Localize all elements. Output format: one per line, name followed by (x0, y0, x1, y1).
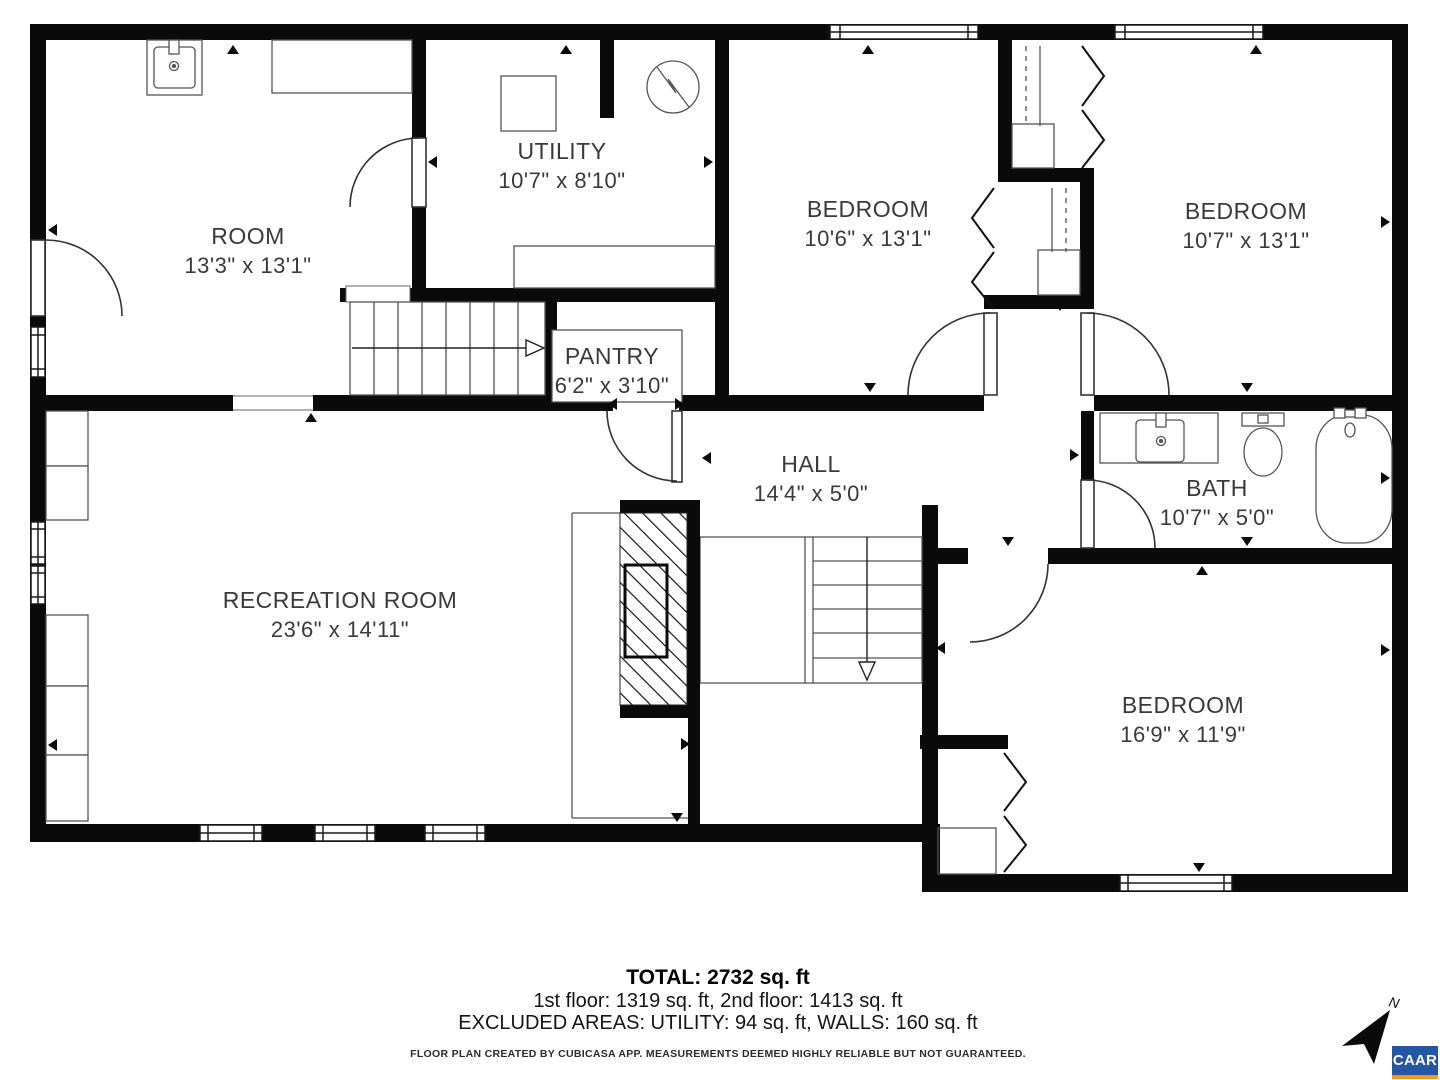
door-bedroom1 (908, 313, 997, 395)
room-dims: 10'7" x 5'0" (1160, 503, 1274, 532)
bath-vanity (1100, 413, 1218, 463)
room-dims: 23'6" x 14'11" (223, 615, 458, 644)
footer-summary: TOTAL: 2732 sq. ft 1st floor: 1319 sq. f… (218, 966, 1218, 1060)
windows-layer (31, 25, 1263, 891)
room-dims: 10'7" x 8'10" (498, 166, 625, 195)
utility-equipment-symbol (647, 61, 699, 113)
room-label-hall: HALL 14'4" x 5'0" (754, 450, 868, 508)
disclaimer-text: FLOOR PLAN CREATED BY CUBICASA APP. MEAS… (218, 1048, 1218, 1060)
room-name: HALL (754, 450, 868, 479)
room-dims: 16'9" x 11'9" (1120, 720, 1246, 749)
room-dims: 14'4" x 5'0" (754, 479, 868, 508)
rec-cabinets (46, 411, 88, 821)
caar-logo: CAAR (1392, 1046, 1438, 1079)
room-counter (272, 40, 412, 93)
room-name: PANTRY (555, 342, 669, 371)
room-name: RECREATION ROOM (223, 586, 458, 615)
utility-counter (514, 246, 715, 288)
window-bedroom3-bottom (1120, 875, 1232, 891)
room-label-room: ROOM 13'3" x 13'1" (184, 222, 311, 280)
room-label-recreation: RECREATION ROOM 23'6" x 14'11" (223, 586, 458, 644)
room-dims: 6'2" x 3'10" (555, 371, 669, 400)
door-room-exterior (31, 240, 122, 316)
door-hall-pantry (607, 411, 682, 482)
stairs-up (346, 286, 545, 395)
fireplace-chimney (572, 500, 700, 818)
window-rec-bottom-1 (200, 825, 262, 841)
room-label-bedroom3: BEDROOM 16'9" x 11'9" (1120, 691, 1246, 749)
room-name: BEDROOM (1120, 691, 1246, 720)
window-rec-bottom-2 (315, 825, 375, 841)
door-room-utility (350, 138, 426, 207)
window-bedroom2-top (1115, 25, 1263, 39)
room-label-bath: BATH 10'7" x 5'0" (1160, 474, 1274, 532)
floor-areas-text: 1st floor: 1319 sq. ft, 2nd floor: 1413 … (218, 990, 1218, 1012)
room-dims: 13'3" x 13'1" (184, 251, 311, 280)
room-label-bedroom1: BEDROOM 10'6" x 13'1" (804, 195, 931, 253)
door-bedroom3 (970, 564, 1048, 642)
total-area-text: TOTAL: 2732 sq. ft (218, 966, 1218, 990)
stairs-down (700, 537, 922, 683)
room-label-utility: UTILITY 10'7" x 8'10" (498, 137, 625, 195)
floor-plan-drawing (0, 0, 1440, 1080)
room-name: BEDROOM (1182, 197, 1309, 226)
caar-logo-text: CAAR (1392, 1046, 1438, 1079)
room-dims: 10'6" x 13'1" (804, 224, 931, 253)
window-rec-left-2 (31, 566, 45, 604)
north-label: N (1387, 993, 1402, 1011)
room-dims: 10'7" x 13'1" (1182, 226, 1309, 255)
room-name: ROOM (184, 222, 311, 251)
window-rec-bottom-3 (425, 825, 485, 841)
window-rec-left-1 (31, 522, 45, 564)
room-label-bedroom2: BEDROOM 10'7" x 13'1" (1182, 197, 1309, 255)
toilet (1242, 413, 1284, 476)
floor-plan-canvas: ROOM 13'3" x 13'1" UTILITY 10'7" x 8'10"… (0, 0, 1440, 1080)
excluded-areas-text: EXCLUDED AREAS: UTILITY: 94 sq. ft, WALL… (218, 1012, 1218, 1034)
window-room-left (31, 327, 45, 377)
room-name: BEDROOM (804, 195, 931, 224)
window-bedroom1-top (830, 25, 978, 39)
laundry-sink (147, 40, 202, 95)
room-name: BATH (1160, 474, 1274, 503)
bathtub (1316, 408, 1392, 543)
room-label-pantry: PANTRY 6'2" x 3'10" (555, 342, 669, 400)
room-name: UTILITY (498, 137, 625, 166)
utility-appliance (501, 76, 556, 131)
door-bath (1081, 480, 1155, 548)
door-bedroom2 (1081, 313, 1169, 395)
